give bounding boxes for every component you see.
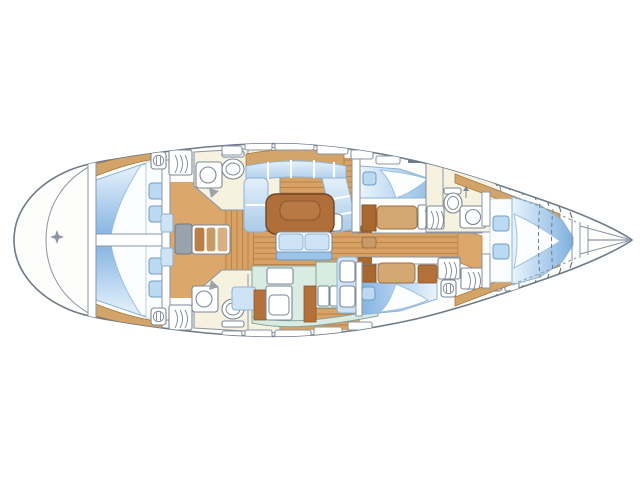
louvered-locker — [438, 258, 460, 280]
dresser — [377, 206, 417, 229]
sheet-band — [490, 199, 514, 282]
layout-plan-svg — [0, 0, 640, 480]
vent-locker-icon — [151, 152, 166, 169]
vent-locker-icon — [441, 280, 456, 297]
companionway — [175, 224, 230, 254]
bench-cushion — [279, 234, 303, 250]
table-inset — [280, 201, 320, 220]
pillow — [493, 216, 509, 231]
bow-cabin-bulkhead — [482, 254, 490, 288]
bow-cabin-bulkhead — [482, 192, 490, 226]
cabinet-door — [254, 290, 266, 320]
fridge-lid — [340, 261, 355, 282]
louvered-locker — [461, 268, 485, 290]
aft-cabin-door-port — [161, 214, 173, 232]
step — [194, 227, 205, 252]
cabinet — [418, 265, 437, 283]
yacht-layout-plan — [0, 0, 640, 480]
saloon-cabin-bulkhead-port — [352, 152, 360, 232]
engine-box — [175, 224, 192, 254]
step — [217, 227, 228, 252]
pillow — [493, 244, 509, 259]
centerline-bulkhead — [96, 234, 162, 246]
dresser — [378, 263, 415, 283]
cabinet-door — [304, 286, 316, 322]
cabinet — [362, 205, 376, 231]
aft-cabin-door-starboard — [161, 248, 173, 266]
step — [206, 227, 216, 252]
pillow — [363, 172, 376, 185]
louvered-locker — [427, 206, 444, 229]
vent-locker-icon — [151, 308, 166, 325]
cabinet — [361, 265, 376, 282]
toilet — [222, 159, 244, 179]
fridge-lid — [340, 286, 355, 307]
sink — [318, 286, 329, 306]
deck-fitting — [370, 329, 388, 335]
washbasin — [196, 291, 212, 307]
pillow — [362, 287, 375, 300]
bench-cushion — [305, 234, 329, 250]
toilet-cistern — [222, 321, 244, 327]
bench-rail — [276, 252, 332, 260]
washbasin — [200, 167, 216, 183]
louvered-locker — [169, 150, 192, 175]
louvered-locker — [169, 305, 192, 330]
floor-hatch — [362, 237, 376, 248]
washbasin — [466, 210, 481, 225]
aft-cabin-forward-bulkhead — [162, 160, 170, 320]
worktop — [267, 268, 293, 284]
galley-cabin-bulkhead — [356, 262, 362, 316]
chart-seat — [232, 287, 256, 310]
transom-bulkhead — [88, 156, 96, 324]
toilet — [444, 193, 462, 213]
